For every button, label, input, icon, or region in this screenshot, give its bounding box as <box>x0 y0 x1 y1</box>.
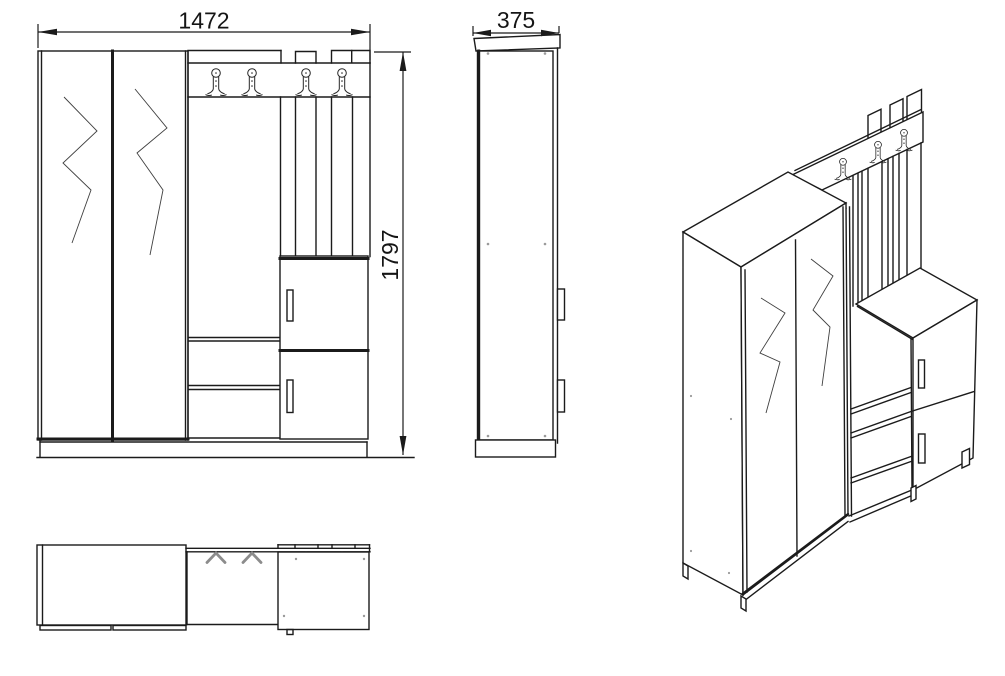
wardrobe-front <box>38 51 188 440</box>
technical-drawing-page: 1472 375 1797 <box>0 0 1005 676</box>
cabinet-handle <box>287 380 293 413</box>
cabinet-handle <box>919 434 926 463</box>
hook-top-icon <box>207 553 225 563</box>
side-view <box>474 35 565 458</box>
coat-hook-icon <box>296 69 317 96</box>
isometric-view <box>683 90 977 612</box>
top-panel-side <box>474 35 560 52</box>
open-shelf-section <box>188 51 281 439</box>
cabinet-foot <box>962 449 970 469</box>
handle-side-profile <box>558 289 565 320</box>
cabinet-handle <box>919 360 925 388</box>
hook-top-icon <box>243 553 261 563</box>
cabinet-foot <box>911 486 916 502</box>
plinth-front <box>37 440 414 458</box>
plan-view <box>37 545 370 635</box>
cabinet-plan <box>278 552 369 635</box>
cabinet-3d <box>856 268 977 502</box>
coat-hook-icon <box>242 69 263 96</box>
plinth-side <box>476 440 556 457</box>
handle-side-profile <box>558 380 565 412</box>
middle-panel-plan <box>187 552 278 625</box>
dimension-height: 1797 <box>374 52 411 455</box>
wardrobe-plan <box>37 545 186 630</box>
dimension-depth: 375 <box>473 7 559 36</box>
dimension-depth-label: 375 <box>497 7 535 33</box>
front-view <box>37 51 414 458</box>
dimension-height-label: 1797 <box>377 229 403 280</box>
coat-hook-icon <box>332 69 353 96</box>
shoe-cabinet-front <box>280 256 368 439</box>
coat-hook-icon <box>206 69 227 96</box>
coat-rack-rail <box>188 51 370 257</box>
shelves-3d <box>849 388 913 523</box>
dimension-width-label: 1472 <box>178 8 229 34</box>
wardrobe-3d <box>683 172 852 611</box>
cabinet-handle <box>287 290 293 321</box>
